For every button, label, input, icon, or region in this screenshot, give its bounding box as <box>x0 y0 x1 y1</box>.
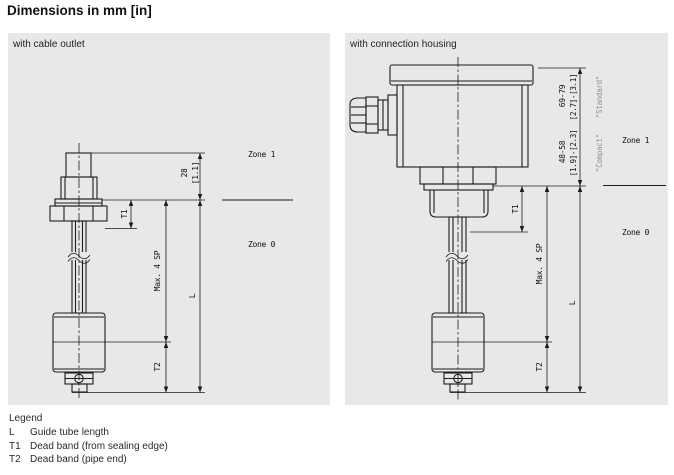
dim-label-max-sp: Max. 4 SP <box>153 250 162 291</box>
legend-term: L <box>9 427 30 438</box>
zone1-label: Zone 1 <box>622 136 650 145</box>
dim-label-standard-name: "Standard" <box>595 76 604 118</box>
dim-label-compact-name: "Compact" <box>595 134 604 172</box>
panel-cable-outlet: with cable outlet <box>8 33 330 405</box>
dim-label-t1: T1 <box>120 209 129 219</box>
dim-label-28: 28 <box>180 168 189 178</box>
page-title: Dimensions in mm [in] <box>7 3 152 18</box>
zone0-label: Zone 0 <box>622 228 650 237</box>
cable-gland <box>350 95 397 135</box>
dim-label-compact-mm: 48-58 <box>558 140 567 163</box>
dim-label-28-in: [1.1] <box>191 162 200 185</box>
connection-housing-drawing: 69-79 [2.7]-[3.1] "Standard" 48-58 [1.9]… <box>345 33 668 405</box>
zone-annotation: Zone 1 Zone 0 <box>603 136 666 237</box>
legend-desc: Dead band (from sealing edge) <box>30 441 168 452</box>
legend-term: T1 <box>9 441 30 452</box>
zone0-label: Zone 0 <box>248 240 276 249</box>
panel-connection-housing: with connection housing <box>345 33 668 405</box>
dim-label-t2: T2 <box>535 362 544 372</box>
dim-label-t2: T2 <box>153 362 162 372</box>
dim-label-compact-in: [1.9]-[2.3] <box>569 130 578 176</box>
cable-outlet-drawing: 28 [1.1] T1 Max. 4 SP T2 L Zone 1 Zone 0 <box>8 33 330 405</box>
zone1-label: Zone 1 <box>248 150 276 159</box>
legend-item-t2: T2 Dead band (pipe end) <box>9 454 168 465</box>
dim-label-t1: T1 <box>511 204 520 214</box>
datasheet-dimensions-section: Dimensions in mm [in] with cable outlet <box>0 0 674 475</box>
legend-item-t1: T1 Dead band (from sealing edge) <box>9 441 168 452</box>
zone-annotation: Zone 1 Zone 0 <box>222 150 293 249</box>
float-switch-upper-body <box>50 153 107 313</box>
dim-label-standard-in: [2.7]-[3.1] <box>569 74 578 120</box>
dim-label-l: L <box>568 300 577 305</box>
legend-term: T2 <box>9 454 30 465</box>
dimension-labels: 28 [1.1] T1 Max. 4 SP T2 L <box>120 162 200 372</box>
connection-housing-body <box>390 65 533 167</box>
legend-item-l: L Guide tube length <box>9 427 168 438</box>
dim-label-l: L <box>188 293 197 298</box>
legend-desc: Guide tube length <box>30 427 109 438</box>
dim-label-max-sp: Max. 4 SP <box>535 243 544 284</box>
dimension-labels: 69-79 [2.7]-[3.1] "Standard" 48-58 [1.9]… <box>511 74 604 372</box>
legend-desc: Dead band (pipe end) <box>30 454 127 465</box>
dimension-lines <box>432 68 586 393</box>
legend-title: Legend <box>9 413 168 424</box>
dim-label-standard-mm: 69-79 <box>558 84 567 107</box>
legend: Legend L Guide tube length T1 Dead band … <box>9 413 168 465</box>
